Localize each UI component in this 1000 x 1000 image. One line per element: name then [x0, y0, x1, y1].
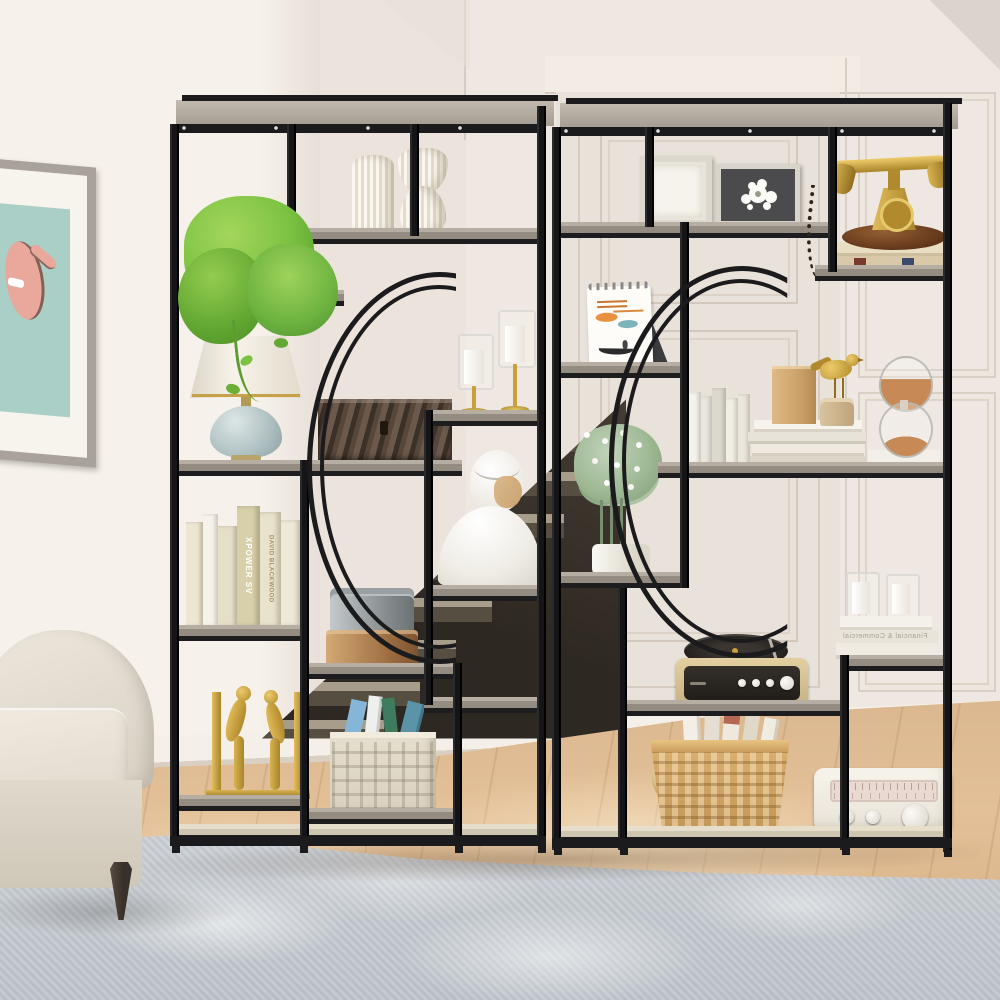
left-unit-top-front-bar [170, 124, 546, 133]
wicker-basket [646, 740, 794, 830]
right-unit-post [943, 103, 952, 852]
shelf-arc-bottom [424, 697, 546, 713]
radio-dial-ticks [834, 793, 934, 799]
pothos-leaf [273, 336, 289, 349]
figurine-right-legs [270, 738, 280, 790]
phone-dial [880, 198, 914, 232]
bookcase-foot [455, 846, 463, 853]
right-unit-post [552, 127, 561, 850]
wood-cylinder [820, 398, 854, 426]
pothos-plant [178, 188, 343, 408]
phone-cradle [888, 170, 900, 190]
shelf-record-player [618, 700, 848, 716]
bookcase-foot [944, 850, 952, 857]
lamp-base [210, 406, 282, 458]
crate-lattice [332, 742, 434, 810]
bookcase-foot [538, 846, 546, 853]
eucalyptus-flowers [584, 432, 590, 438]
candle-holder-tall [496, 310, 534, 416]
book-spine [203, 514, 218, 626]
gold-figurine-bookends [206, 682, 310, 800]
left-unit-post [410, 124, 419, 236]
player-brand-dot [690, 682, 706, 685]
bookend-plate-left [212, 692, 221, 792]
shelf-books [170, 625, 308, 641]
wall-art-print [0, 203, 70, 417]
bookcase-foot [842, 848, 850, 855]
frame-art-faint [650, 165, 702, 217]
right-unit-post [645, 127, 654, 227]
bookcase-foot [172, 846, 180, 853]
left-unit-post [453, 663, 462, 846]
right-unit-top-front-bar [552, 127, 952, 136]
candle [852, 582, 870, 614]
gold-bird-figurine [810, 350, 862, 402]
door-lintel [545, 56, 860, 94]
bird-head [846, 354, 859, 366]
candle [464, 350, 484, 384]
book-spine [281, 520, 301, 626]
figurine-left-legs [234, 736, 244, 790]
flower-center [755, 191, 761, 197]
bookcase-foot [300, 846, 308, 853]
candle-stem [472, 386, 476, 408]
candle-holder-short [456, 334, 494, 416]
bust-face [494, 476, 522, 508]
left-unit-post [537, 106, 546, 846]
player-knob-large [780, 676, 794, 690]
candle-stem [513, 364, 517, 406]
radio-knob [866, 810, 880, 824]
player-knob [738, 679, 746, 687]
left-unit-base-bar [170, 836, 546, 846]
striped-vase-cylinder [352, 155, 394, 233]
pothos-leaf [224, 381, 241, 397]
player-knob [752, 679, 760, 687]
hourglass [868, 356, 940, 468]
antique-telephone [824, 150, 954, 272]
basket-rim [646, 740, 794, 752]
shelf-figurines [170, 795, 308, 811]
right-unit-top-surface [560, 103, 958, 129]
shelf-candle-books [840, 655, 952, 671]
right-unit-post [840, 655, 849, 850]
radio-dial-ticks [834, 783, 934, 790]
book-spine [186, 522, 203, 626]
book-spine [218, 526, 237, 626]
book-spine-author: DAVID BLACKWOOD [260, 512, 281, 626]
shelf-canisters [300, 663, 462, 679]
hourglass-bottom-bulb [879, 402, 933, 458]
candle-book-titled: Financial & Commercial [832, 630, 938, 643]
frame-art-dark [721, 169, 795, 221]
sofa-leg [110, 862, 132, 920]
candles-on-books: Financial & Commercial [830, 572, 942, 662]
player-knob [766, 679, 774, 687]
left-unit-top-back-bar [182, 95, 558, 101]
bookcase-foot [554, 848, 562, 855]
right-unit-base-bar [552, 838, 952, 848]
left-unit-top-surface [176, 100, 554, 126]
right-unit-top-back-bar [566, 98, 962, 104]
wall-art-frame [0, 156, 96, 467]
book-spine-xpower: XPOWER SV [237, 506, 260, 626]
shelf-crate [300, 808, 462, 824]
candle-book [840, 616, 932, 630]
candle [505, 326, 525, 362]
living-room-photo: XPOWER SV DAVID BLACKWOOD [0, 0, 1000, 1000]
shelf-frames [560, 222, 832, 238]
white-lattice-crate [330, 732, 436, 812]
bird-legs [834, 378, 836, 398]
picture-frame-flower [716, 164, 800, 226]
hourglass-waist [900, 400, 908, 410]
book-row: XPOWER SV DAVID BLACKWOOD [186, 504, 306, 626]
candle [892, 584, 910, 614]
ceiling-wedge-right [920, 0, 1000, 70]
bookcase-foot [620, 848, 628, 855]
vintage-radio [814, 768, 952, 832]
